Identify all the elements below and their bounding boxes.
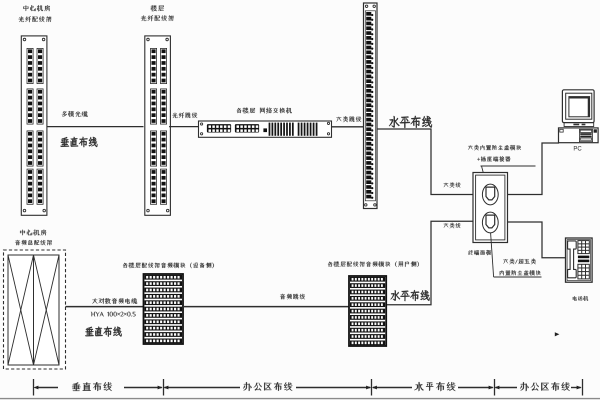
svg-text:PC: PC xyxy=(573,147,582,153)
